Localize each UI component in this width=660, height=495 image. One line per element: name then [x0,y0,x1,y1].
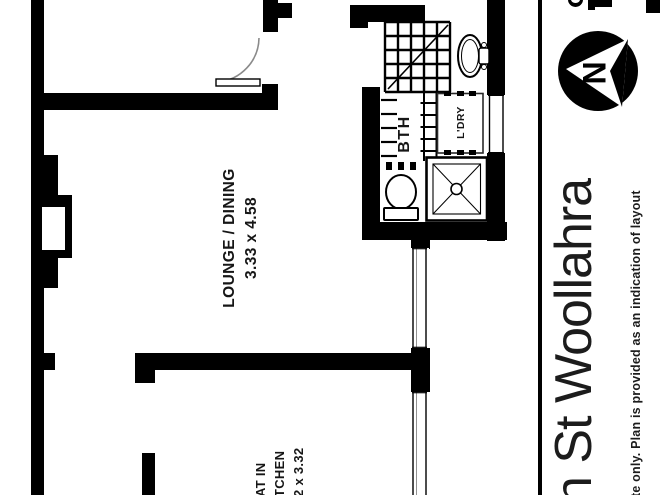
shower [427,158,488,221]
entry-door [216,38,260,86]
fitting-ticks-row [386,162,416,170]
window-strip-upper [411,248,429,348]
kitchen-label-line2: TCHEN [270,427,289,495]
cropped-glyph-bar-stub [588,6,595,10]
cropped-glyph-corner [646,0,660,13]
floorplan-page: LOUNGE / DINING 3.33 x 4.58 BTH L'DRY AT… [0,0,660,495]
towel-rail-ticks [381,100,397,156]
plan-border-line [538,0,542,495]
lounge-dining-name: LOUNGE / DINING [219,154,241,322]
wash-basin [458,35,489,77]
lounge-dining-label: LOUNGE / DINING 3.33 x 4.58 [219,154,263,322]
cropped-glyph-arc [568,0,583,7]
shelf-ladder [421,92,438,161]
kitchen-label: AT IN TCHEN 2 x 3.32 [251,427,308,495]
shower-drain [451,184,462,195]
bathroom-label: BTH [396,105,414,163]
window-right-wall [487,95,505,153]
basin-tap [479,48,489,64]
door-swing-arc [218,38,259,82]
toilet [384,175,418,220]
lounge-dining-dimensions: 3.33 x 4.58 [241,154,263,322]
address-title: n St Woollahra [548,179,600,495]
window-strip-lower [411,392,429,495]
bathroom-tiled-area [385,22,450,92]
door-leaf [216,79,260,86]
disclaimer-text: te only. Plan is provided as an indicati… [629,190,643,495]
laundry-label: L'DRY [455,99,467,146]
toilet-cistern [384,208,418,220]
plan-fixtures [0,0,540,495]
kitchen-label-line1: AT IN [251,427,270,495]
toilet-bowl [386,175,416,209]
compass-north-label: N [577,61,613,84]
kitchen-dimensions: 2 x 3.32 [289,427,308,495]
north-compass-icon: N [556,29,640,113]
